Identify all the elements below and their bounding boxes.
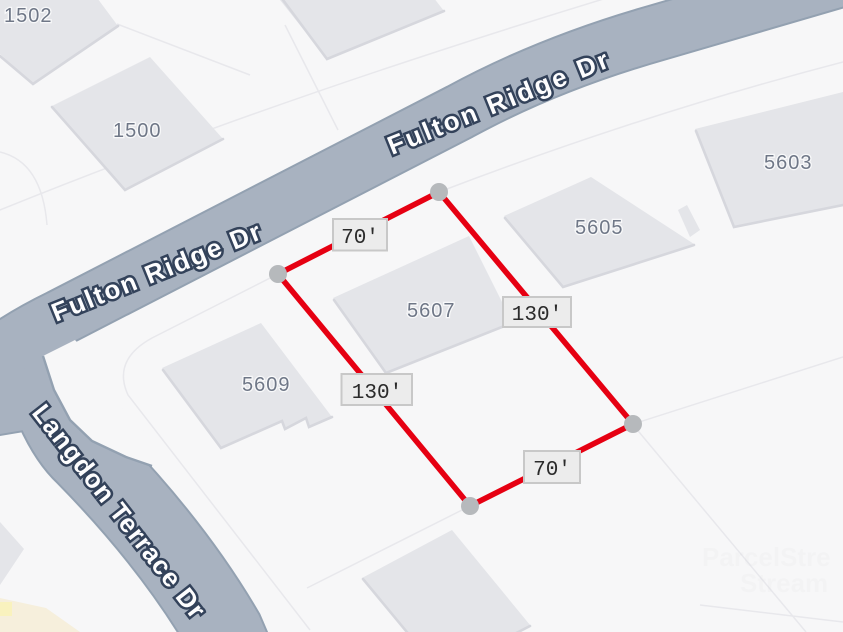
svg-text:Stream: Stream — [740, 568, 828, 598]
svg-text:5603: 5603 — [764, 152, 813, 174]
svg-text:5605: 5605 — [575, 217, 624, 239]
svg-text:130': 130' — [512, 304, 562, 327]
svg-text:1500: 1500 — [113, 120, 162, 142]
svg-text:5607: 5607 — [407, 300, 456, 322]
svg-text:70': 70' — [341, 227, 379, 250]
svg-text:5609: 5609 — [242, 374, 291, 396]
svg-text:130': 130' — [352, 382, 402, 405]
svg-text:70': 70' — [533, 459, 571, 482]
svg-text:1502: 1502 — [4, 5, 53, 27]
